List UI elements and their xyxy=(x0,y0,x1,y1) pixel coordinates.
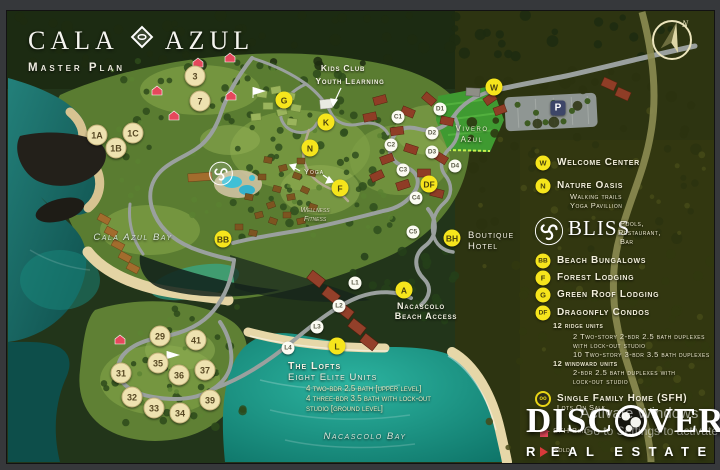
legend-dragonfly-label: Dragonfly Condos xyxy=(557,307,650,318)
dragonfly-ridge-title: 12 ridge units xyxy=(553,321,603,330)
dragonfly-windward-line1: 2-bdr 2.5 bath duplexes with xyxy=(573,368,675,377)
dragonfly-ridge-line3: 10 Two-story 3-bdr 3.5 bath duplexes xyxy=(573,350,710,359)
map-marker-n: N xyxy=(302,140,319,157)
legend-greenroof-icon: G xyxy=(536,288,551,303)
activate-windows-watermark-line2: Go to Settings to activate xyxy=(584,424,718,438)
label-vivero-line1: Vivero xyxy=(455,124,488,133)
label-nacascolo: Nacascolo xyxy=(397,301,445,311)
map-marker-41: 41 xyxy=(186,330,207,351)
map-marker-39: 39 xyxy=(200,390,221,411)
map-marker-p: P xyxy=(551,101,566,116)
map-marker-d4: D4 xyxy=(449,160,462,173)
legend-nature-label: Nature Oasis xyxy=(557,180,623,191)
map-marker-l1: L1 xyxy=(349,277,362,290)
map-marker-d2: D2 xyxy=(426,127,439,140)
map-marker-d3: D3 xyxy=(426,146,439,159)
legend-welcome-label: Welcome Center xyxy=(557,157,640,168)
map-marker-bb: BB xyxy=(215,231,232,248)
map-marker-35: 35 xyxy=(148,353,169,374)
bliss-desc3: Bar xyxy=(620,237,633,246)
map-marker-29: 29 xyxy=(150,326,171,347)
map-marker-l3: L3 xyxy=(311,321,324,334)
bliss-desc1: Pools, xyxy=(620,219,644,228)
compass-rose: N xyxy=(646,14,698,71)
map-marker-f: F xyxy=(332,180,349,197)
tagline-rest: EAL ESTATE xyxy=(551,444,715,459)
label-lofts-line3: studio [ground level] xyxy=(306,404,383,413)
map-marker-33: 33 xyxy=(144,398,165,419)
legend-forest-icon: F xyxy=(536,271,551,286)
legend-welcome-icon: W xyxy=(536,156,551,171)
activate-windows-watermark-line1: Activate Windows xyxy=(580,405,698,422)
screenshot-frame: Kids Club Youth Learning Vivero Azul Yog… xyxy=(0,0,720,470)
bliss-spa-map-icon xyxy=(208,161,234,192)
map-marker-1c: 1C xyxy=(123,123,144,144)
legend-forest-label: Forest Lodging xyxy=(557,272,634,283)
map-marker-bh: BH xyxy=(444,230,461,247)
map-marker-c1: C1 xyxy=(392,111,405,124)
logo-text-cala: CALA xyxy=(28,26,119,56)
map-marker-df: DF xyxy=(421,176,438,193)
map-marker-c3: C3 xyxy=(397,164,410,177)
label-lofts-subtitle: Eight Elite Units xyxy=(288,372,377,383)
label-boutique: Boutique xyxy=(468,230,514,241)
map-marker-d1: D1 xyxy=(434,103,447,116)
map-marker-7: 7 xyxy=(190,91,211,112)
label-lofts-title: The Lofts xyxy=(288,360,341,372)
map-marker-k: K xyxy=(318,114,335,131)
label-lofts-line1: 4 two-bdr 2.5 bath [upper level] xyxy=(306,384,421,393)
label-vivero-line2: Azul xyxy=(461,135,484,144)
label-nacascolo-bay: Nacascolo Bay xyxy=(323,431,406,442)
legend-dragonfly-icon: DF xyxy=(536,306,551,321)
legend-bb-icon: BB xyxy=(536,254,551,269)
dragonfly-windward-title: 12 windward units xyxy=(553,359,618,368)
label-lofts-line2: 4 three-bdr 3.5 bath with lock-out xyxy=(306,394,431,403)
legend-nature-sub2: Yoga Pavillion xyxy=(570,201,622,210)
map-marker-1b: 1B xyxy=(106,138,127,159)
map-marker-l: L xyxy=(329,338,346,355)
map-marker-g: G xyxy=(276,92,293,109)
red-arrow-icon xyxy=(540,447,548,457)
compass-north-label: N xyxy=(681,19,689,29)
legend-nature-sub1: Walking trails xyxy=(570,192,622,201)
legend-greenroof-label: Green Roof Lodging xyxy=(557,289,659,300)
map-marker-31: 31 xyxy=(111,363,132,384)
map-marker-37: 37 xyxy=(195,360,216,381)
dragonfly-ridge-line1: 2 Two-story 2-bdr 2.5 bath duplexes xyxy=(573,332,705,341)
logo-text-azul: AZUL xyxy=(165,26,254,56)
map-marker-c5: C5 xyxy=(407,226,420,239)
map-marker-l2: L2 xyxy=(333,300,346,313)
legend-bb-label: Beach Bungalows xyxy=(557,255,646,266)
map-marker-34: 34 xyxy=(170,403,191,424)
label-cala-azul-bay: Cala Azul Bay xyxy=(93,232,172,243)
label-kids-club: Kids Club xyxy=(321,63,365,73)
map-marker-l4: L4 xyxy=(282,342,295,355)
map-marker-36: 36 xyxy=(169,365,190,386)
map-marker-32: 32 xyxy=(122,387,143,408)
bliss-legend-icon xyxy=(534,216,564,251)
map-marker-c4: C4 xyxy=(410,192,423,205)
cala-azul-logo: CALA AZUL Master Plan xyxy=(28,24,254,74)
map-marker-c2: C2 xyxy=(385,139,398,152)
label-youth-learning: Youth Learning xyxy=(315,76,384,86)
label-hotel: Hotel xyxy=(468,241,498,252)
label-beach-access: Beach Access xyxy=(395,311,457,321)
label-wellness: Wellness xyxy=(300,207,329,214)
map-marker-w: W xyxy=(486,79,503,96)
map-marker-1a: 1A xyxy=(87,125,108,146)
dragonfly-windward-line2: lock-out studio xyxy=(573,377,628,386)
legend-nature-icon: N xyxy=(536,179,551,194)
label-yoga: Yoga xyxy=(304,167,324,176)
diamond-logo-icon xyxy=(129,24,155,57)
map-marker-a: A xyxy=(396,282,413,299)
bliss-desc2: Restaurant, xyxy=(618,228,661,237)
master-plan-subtitle: Master Plan xyxy=(28,62,254,74)
label-fitness: Fitness xyxy=(304,216,326,223)
dragonfly-ridge-line2: with lock-out studio xyxy=(573,341,646,350)
